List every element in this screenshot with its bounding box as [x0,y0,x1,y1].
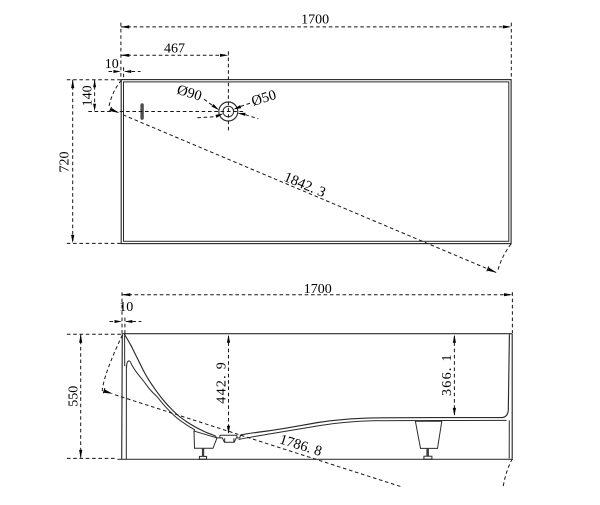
svg-text:140: 140 [81,85,96,106]
svg-text:10: 10 [105,57,119,72]
svg-text:720: 720 [57,152,72,173]
svg-text:550: 550 [67,386,82,407]
svg-text:1700: 1700 [301,12,329,27]
svg-text:467: 467 [164,42,185,57]
svg-text:10: 10 [119,300,133,315]
svg-text:1700: 1700 [304,282,332,297]
svg-text:366. 1: 366. 1 [440,353,455,396]
svg-text:442. 9: 442. 9 [215,361,230,404]
